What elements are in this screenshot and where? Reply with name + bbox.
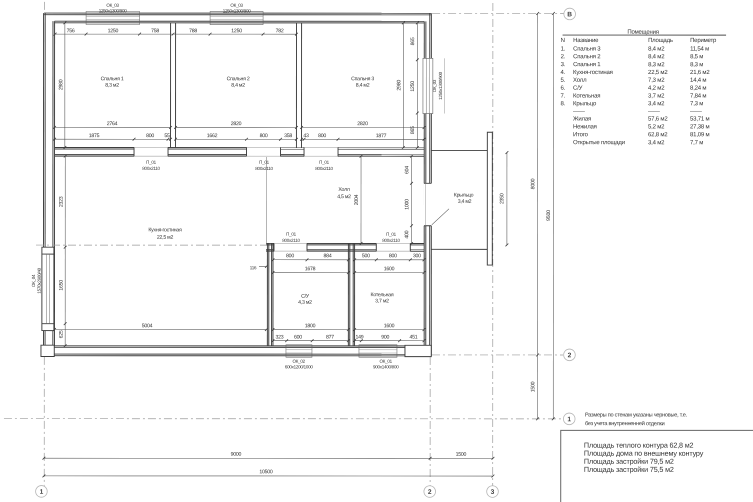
svg-text:323: 323 (276, 334, 284, 340)
svg-text:7,3 м: 7,3 м (690, 100, 703, 107)
svg-text:3: 3 (491, 489, 495, 496)
svg-text:625: 625 (59, 330, 65, 338)
svg-text:Спальня 2: Спальня 2 (227, 76, 250, 82)
svg-text:Холл: Холл (338, 187, 349, 193)
svg-text:без учета внутренненней отделк: без учета внутренненней отделки (585, 420, 665, 427)
svg-text:2820: 2820 (357, 121, 368, 127)
svg-text:5004: 5004 (142, 323, 153, 329)
svg-text:Нежилая: Нежилая (573, 123, 597, 130)
svg-text:600х1200/1000: 600х1200/1000 (285, 364, 314, 369)
svg-text:Площадь: Площадь (648, 37, 673, 44)
svg-text:400: 400 (404, 230, 410, 238)
svg-text:758: 758 (151, 28, 159, 34)
svg-text:В: В (567, 11, 572, 18)
svg-text:800: 800 (260, 133, 268, 139)
svg-text:1600: 1600 (384, 323, 395, 329)
svg-text:5.: 5. (561, 77, 566, 84)
svg-text:149: 149 (356, 334, 364, 340)
svg-text:Холл: Холл (573, 77, 587, 84)
svg-text:1250: 1250 (231, 28, 242, 34)
svg-text:21,6 м2: 21,6 м2 (690, 69, 710, 76)
svg-text:Спальня 3: Спальня 3 (573, 45, 601, 52)
svg-text:865: 865 (410, 126, 416, 134)
svg-text:1678: 1678 (305, 266, 316, 272)
svg-text:8,3 м2: 8,3 м2 (648, 61, 665, 68)
svg-text:П_01: П_01 (259, 160, 269, 165)
svg-text:П_01: П_01 (286, 232, 296, 237)
svg-text:Кухня-гостиная: Кухня-гостиная (148, 227, 182, 233)
svg-text:1500: 1500 (530, 381, 536, 392)
svg-text:Спальня 1: Спальня 1 (573, 61, 601, 68)
svg-text:Открытые площади: Открытые площади (573, 139, 625, 146)
svg-text:1800: 1800 (305, 323, 316, 329)
svg-text:884: 884 (324, 253, 332, 259)
svg-text:N: N (561, 37, 565, 44)
svg-text:1250: 1250 (410, 81, 416, 92)
svg-text:7,84 м: 7,84 м (690, 93, 706, 100)
svg-text:1875: 1875 (89, 133, 100, 139)
svg-text:1570х2900/40: 1570х2900/40 (37, 267, 42, 293)
svg-text:8,4 м2: 8,4 м2 (648, 53, 665, 60)
svg-text:1877: 1877 (376, 133, 387, 139)
svg-text:ОК_03: ОК_03 (230, 3, 243, 8)
svg-text:Спальня 2: Спальня 2 (573, 53, 601, 60)
svg-text:7,7 м: 7,7 м (690, 139, 703, 146)
svg-text:1: 1 (40, 489, 44, 496)
svg-text:——: —— (648, 109, 660, 115)
svg-text:4.: 4. (561, 69, 566, 76)
svg-text:8,24 м: 8,24 м (690, 85, 706, 92)
svg-text:9500: 9500 (546, 210, 552, 221)
svg-text:800х2110: 800х2110 (315, 166, 333, 171)
svg-text:22,5 м2: 22,5 м2 (157, 235, 174, 241)
svg-text:800: 800 (286, 253, 294, 259)
svg-text:11,54 м: 11,54 м (690, 46, 709, 53)
svg-text:451: 451 (410, 335, 418, 341)
svg-text:Спальня 3: Спальня 3 (351, 76, 374, 82)
svg-text:ОК_04: ОК_04 (31, 274, 36, 287)
svg-text:Размеры по стенам указаны черн: Размеры по стенам указаны черновые, т.е. (585, 412, 688, 418)
svg-text:1250х1300/900: 1250х1300/900 (223, 8, 252, 13)
svg-text:2: 2 (428, 489, 432, 496)
svg-text:Крыльцо: Крыльцо (573, 100, 597, 107)
svg-text:8,5 м: 8,5 м (690, 53, 703, 60)
svg-text:8,4 м2: 8,4 м2 (648, 45, 665, 52)
svg-text:1250: 1250 (108, 28, 119, 34)
svg-text:4,3 м2: 4,3 м2 (298, 300, 312, 306)
svg-text:Название: Название (573, 37, 599, 44)
svg-text:1250х1300/900: 1250х1300/900 (99, 8, 128, 13)
svg-text:ОК_02: ОК_02 (293, 359, 306, 364)
svg-text:43: 43 (303, 133, 309, 139)
svg-text:Площадь застройки 75,5 м2: Площадь застройки 75,5 м2 (584, 465, 674, 474)
svg-text:1500: 1500 (456, 452, 467, 458)
svg-text:П_01: П_01 (319, 160, 329, 165)
svg-text:Котельная: Котельная (371, 292, 394, 298)
svg-text:ОК_01: ОК_01 (380, 359, 393, 364)
svg-text:1250х1300/900: 1250х1300/900 (438, 71, 443, 100)
svg-text:358: 358 (284, 133, 292, 139)
svg-text:ОК_03: ОК_03 (106, 3, 119, 8)
svg-text:800: 800 (318, 133, 326, 139)
svg-text:877: 877 (326, 334, 334, 340)
svg-text:800: 800 (146, 133, 154, 139)
svg-text:Жилая: Жилая (573, 115, 591, 122)
svg-text:2764: 2764 (107, 121, 118, 127)
svg-text:Котельная: Котельная (573, 92, 600, 99)
svg-text:1650: 1650 (59, 280, 65, 291)
svg-text:800х2110: 800х2110 (142, 166, 160, 171)
svg-text:Кухня-гостиная: Кухня-гостиная (573, 69, 613, 76)
svg-text:10500: 10500 (259, 469, 273, 475)
svg-text:1000: 1000 (404, 199, 410, 210)
svg-text:С/У: С/У (301, 294, 310, 300)
svg-text:ОК_03: ОК_03 (432, 79, 437, 92)
svg-text:Спальня 1: Спальня 1 (101, 76, 124, 82)
svg-text:8,3 м: 8,3 м (690, 61, 703, 68)
svg-text:3,7 м2: 3,7 м2 (648, 92, 665, 99)
svg-text:2.: 2. (561, 53, 566, 60)
svg-text:8000: 8000 (530, 178, 536, 189)
svg-text:7.: 7. (561, 92, 566, 99)
svg-text:116: 116 (250, 265, 257, 270)
svg-text:22,5 м2: 22,5 м2 (648, 69, 668, 76)
svg-text:81,09 м: 81,09 м (690, 131, 709, 138)
svg-text:2323: 2323 (59, 196, 65, 207)
svg-text:900х1400/800: 900х1400/800 (373, 364, 399, 369)
svg-text:1: 1 (567, 416, 571, 423)
svg-text:27,38 м: 27,38 м (690, 123, 709, 130)
svg-text:Итого: Итого (573, 131, 589, 138)
svg-text:1.: 1. (561, 45, 566, 52)
svg-text:8,4 м2: 8,4 м2 (356, 83, 370, 89)
svg-text:С/У: С/У (573, 85, 583, 92)
svg-text:600: 600 (294, 334, 302, 340)
svg-text:55: 55 (164, 133, 170, 139)
svg-text:8,4 м2: 8,4 м2 (231, 83, 245, 89)
svg-text:3.: 3. (561, 61, 566, 68)
svg-text:5,2 м2: 5,2 м2 (648, 123, 665, 130)
svg-text:62,8 м2: 62,8 м2 (648, 131, 668, 138)
svg-text:14,4 м: 14,4 м (690, 77, 706, 84)
svg-text:2980: 2980 (396, 80, 402, 91)
svg-text:8.: 8. (561, 100, 566, 107)
svg-text:788: 788 (189, 28, 197, 34)
svg-text:500: 500 (362, 253, 370, 259)
svg-text:604: 604 (404, 166, 410, 174)
svg-text:3,4 м2: 3,4 м2 (648, 139, 665, 146)
svg-text:Крыльцо: Крыльцо (454, 193, 474, 199)
svg-text:756: 756 (67, 28, 75, 34)
svg-text:2820: 2820 (231, 121, 242, 127)
svg-text:865: 865 (410, 37, 416, 45)
svg-text:6.: 6. (561, 85, 566, 92)
svg-text:2980: 2980 (58, 79, 64, 90)
svg-text:3,4 м2: 3,4 м2 (648, 100, 665, 107)
svg-text:4,2 м2: 4,2 м2 (648, 85, 665, 92)
svg-text:Периметр: Периметр (690, 37, 717, 44)
svg-text:800х2110: 800х2110 (282, 238, 300, 243)
svg-text:П_01: П_01 (386, 232, 396, 237)
svg-text:4,5 м2: 4,5 м2 (337, 194, 351, 200)
svg-text:2004: 2004 (354, 194, 360, 205)
svg-text:2: 2 (568, 352, 572, 359)
svg-text:П_01: П_01 (146, 160, 156, 165)
svg-text:1600: 1600 (384, 266, 395, 272)
svg-text:7,3 м2: 7,3 м2 (648, 77, 665, 84)
svg-text:3,7 м2: 3,7 м2 (375, 298, 389, 304)
svg-text:1662: 1662 (207, 133, 218, 139)
svg-text:900: 900 (381, 335, 389, 341)
svg-text:2350: 2350 (499, 193, 505, 204)
svg-text:53,71 м: 53,71 м (690, 116, 709, 123)
svg-text:——: —— (573, 109, 585, 115)
svg-text:——: —— (690, 109, 702, 115)
svg-text:9000: 9000 (231, 452, 242, 458)
svg-text:800х2110: 800х2110 (255, 166, 273, 171)
svg-text:8,3 м2: 8,3 м2 (105, 83, 119, 89)
svg-text:300: 300 (413, 253, 421, 259)
svg-text:3,4 м2: 3,4 м2 (458, 199, 472, 205)
svg-text:800: 800 (389, 253, 397, 259)
svg-text:57,6 м2: 57,6 м2 (648, 115, 668, 122)
svg-text:800х2110: 800х2110 (382, 238, 400, 243)
svg-text:782: 782 (276, 28, 284, 34)
